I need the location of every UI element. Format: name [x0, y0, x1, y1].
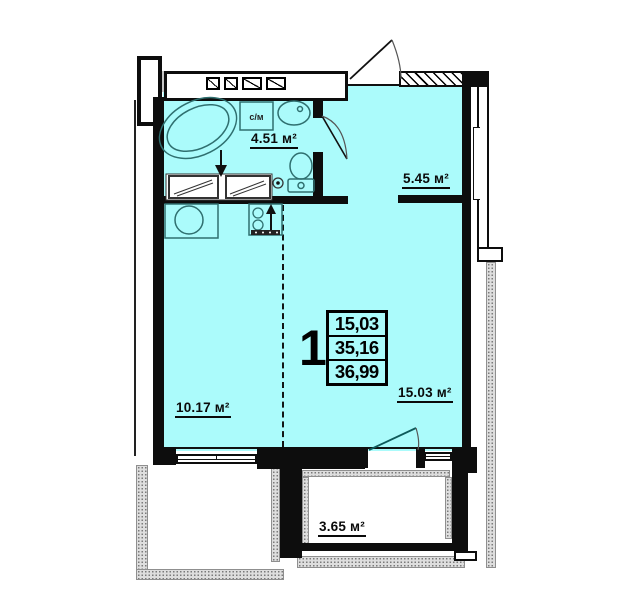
- stem-left-lining: [271, 466, 280, 562]
- wall-right: [462, 71, 471, 472]
- entrance-hatched-wall: [399, 71, 465, 87]
- balcony-area-label: 3.65 м²: [318, 519, 366, 537]
- wall-hallway-bottom: [398, 195, 464, 203]
- living-room-area-label: 15.03 м²: [397, 385, 453, 403]
- bathroom-area-label: 4.51 м²: [250, 131, 298, 149]
- bottom-right-step: [454, 551, 477, 561]
- wall-bathroom-bottom: [158, 196, 348, 204]
- wall-bottom-center: [257, 447, 365, 469]
- left-balcony-bottom-wall: [136, 569, 284, 580]
- vent-duct-icon: [242, 77, 262, 90]
- wall-balcony-right: [452, 468, 468, 551]
- total-area-value: 36,99: [327, 359, 387, 385]
- kitchen-living-divider: [282, 205, 284, 447]
- right-outer-wall-step: [477, 247, 503, 262]
- apartment-area-value: 35,16: [327, 335, 387, 361]
- wall-balcony-bottom: [299, 543, 468, 551]
- outer-right-band: [486, 262, 496, 568]
- balcony-door-jamb-left: [359, 447, 368, 468]
- outer-bottom-band: [297, 556, 465, 568]
- rooms-count: 1: [299, 310, 325, 386]
- living-area-value: 15,03: [327, 311, 387, 337]
- wall-bottom-left-corner: [153, 447, 176, 465]
- wall-top-right-corner: [462, 71, 489, 87]
- vent-duct-icon: [206, 77, 220, 90]
- kitchen-window: [176, 454, 257, 464]
- floor-plan: с/м: [0, 0, 640, 600]
- kitchen-area-label: 10.17 м²: [175, 400, 231, 418]
- exterior-face-line: [134, 100, 136, 456]
- hallway-area-label: 5.45 м²: [402, 171, 450, 189]
- wall-left: [153, 97, 164, 456]
- entrance-door-icon: [350, 40, 401, 79]
- vent-duct-icon: [224, 77, 238, 90]
- wall-bathroom-right-upper: [313, 98, 323, 118]
- vent-duct-icon: [266, 77, 286, 90]
- left-balcony-left-wall: [136, 465, 148, 580]
- balcony-right-lining: [445, 477, 452, 539]
- entrance-threshold: [348, 84, 400, 86]
- area-table: 15,03 35,16 36,99: [326, 310, 388, 386]
- living-room-window: [424, 452, 452, 461]
- apartment-info-stamp: 1 15,03 35,16 36,99: [299, 310, 388, 386]
- balcony-top-lining: [302, 470, 450, 477]
- balcony-left-lining: [302, 477, 309, 545]
- right-wall-niche: [473, 127, 480, 200]
